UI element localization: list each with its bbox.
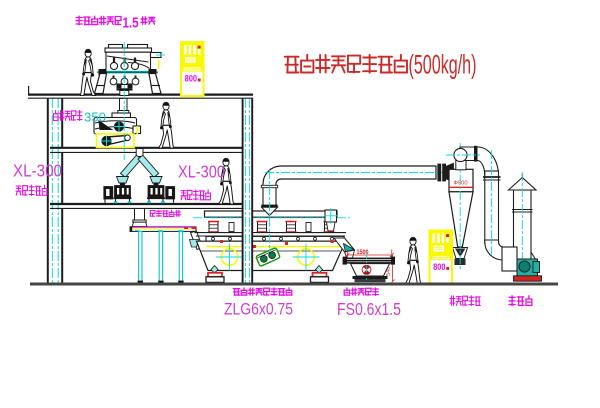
svg-text:FS0.6x1.5: FS0.6x1.5 — [337, 299, 401, 319]
svg-text:800: 800 — [185, 74, 198, 85]
svg-text:800: 800 — [433, 262, 446, 273]
svg-text:1.5: 1.5 — [123, 16, 139, 32]
svg-text:(500kg/h): (500kg/h) — [409, 50, 477, 80]
svg-text:XL-300: XL-300 — [178, 162, 225, 182]
svg-text:1500: 1500 — [357, 249, 369, 256]
svg-text:ZLG6x0.75: ZLG6x0.75 — [224, 300, 293, 319]
svg-text:XL-300: XL-300 — [13, 161, 62, 181]
svg-text:350: 350 — [84, 111, 106, 125]
